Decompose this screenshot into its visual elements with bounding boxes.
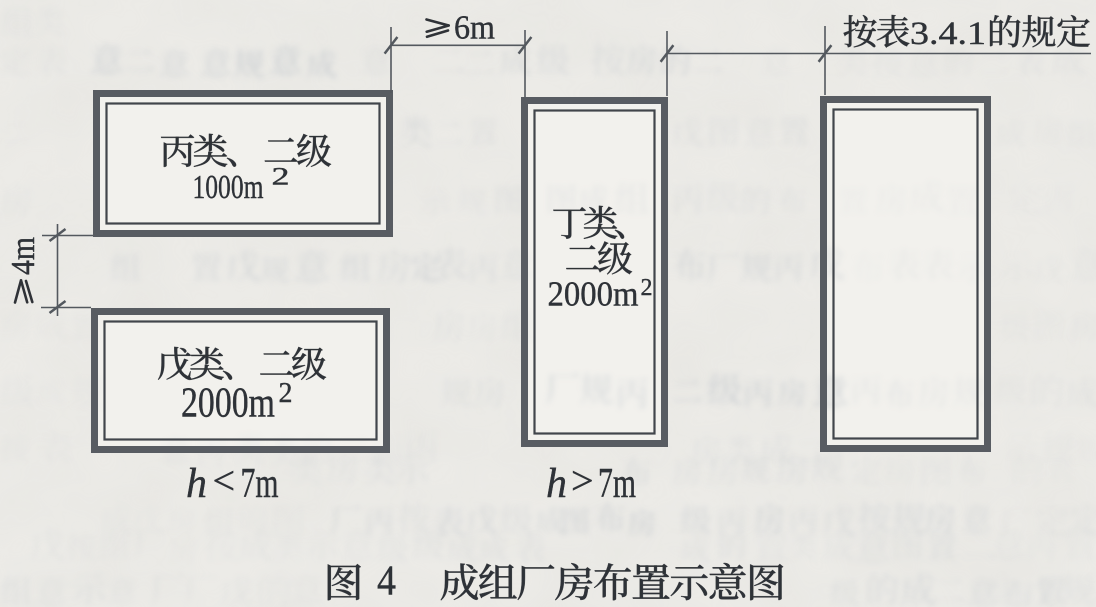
svg-text:h: h [186, 461, 207, 507]
svg-text:7m: 7m [598, 461, 636, 507]
svg-text:2: 2 [641, 275, 653, 301]
svg-text:4: 4 [377, 559, 396, 605]
svg-text:>: > [571, 458, 594, 503]
svg-text:3.4.1: 3.4.1 [910, 16, 986, 52]
svg-text:2000m: 2000m [548, 275, 639, 314]
svg-text:2: 2 [272, 164, 290, 191]
svg-text:7m: 7m [241, 461, 279, 507]
svg-text:h: h [546, 461, 567, 507]
svg-text:2: 2 [279, 377, 293, 409]
svg-text:4m: 4m [5, 237, 42, 275]
svg-text:1000m: 1000m [193, 169, 264, 206]
svg-text:<: < [213, 458, 236, 503]
svg-text:2000m: 2000m [181, 381, 275, 427]
svg-text:6m: 6m [454, 9, 495, 46]
